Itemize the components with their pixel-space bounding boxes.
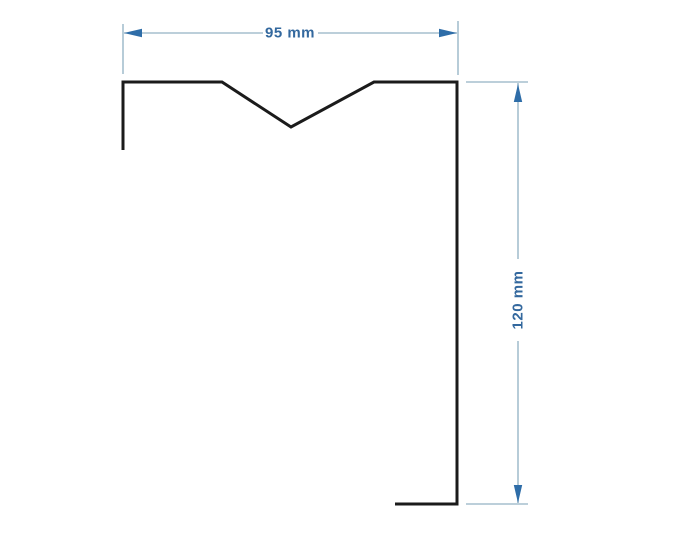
arrowhead-up-icon xyxy=(514,84,522,102)
height-dimension-label: 120 mm xyxy=(510,271,527,330)
width-dimension-label: 95 mm xyxy=(265,25,315,42)
drawing-canvas: 95 mm 120 mm xyxy=(0,0,675,540)
arrowhead-left-icon xyxy=(124,29,142,37)
arrowhead-down-icon xyxy=(514,485,522,503)
profile-outline xyxy=(123,82,457,504)
profile-drawing: 95 mm 120 mm xyxy=(0,0,675,540)
height-dimension: 120 mm xyxy=(466,82,528,504)
width-dimension: 95 mm xyxy=(123,21,458,75)
arrowhead-right-icon xyxy=(439,29,457,37)
